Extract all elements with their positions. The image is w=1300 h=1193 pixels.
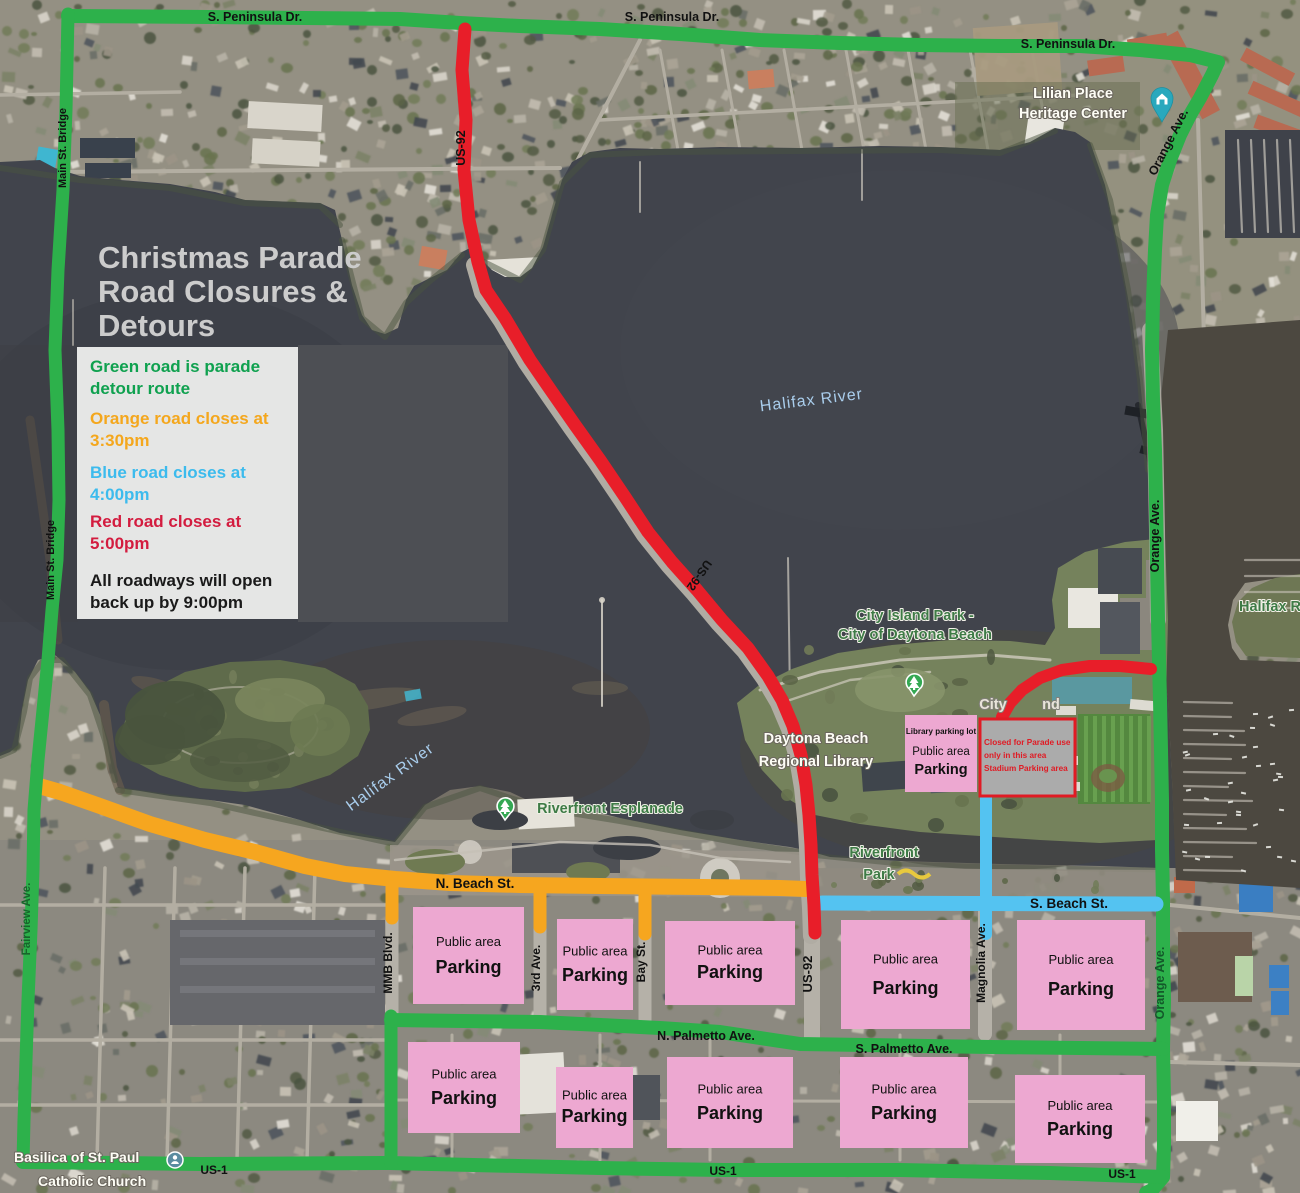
svg-text:Parking: Parking <box>872 978 938 998</box>
svg-text:Riverfront: Riverfront <box>849 845 918 861</box>
svg-text:Heritage Center: Heritage Center <box>1019 106 1127 122</box>
svg-text:US-92: US-92 <box>800 956 815 993</box>
svg-text:Public area: Public area <box>697 943 763 958</box>
svg-text:Public area: Public area <box>697 1081 763 1096</box>
svg-text:City Island Park -: City Island Park - <box>856 608 974 624</box>
svg-text:Main St. Bridge: Main St. Bridge <box>45 520 57 600</box>
svg-text:Public area: Public area <box>912 746 970 758</box>
svg-text:Public area: Public area <box>1048 952 1114 967</box>
svg-text:Detours: Detours <box>98 308 215 343</box>
svg-text:Road Closures &: Road Closures & <box>98 274 348 309</box>
svg-text:S. Beach St.: S. Beach St. <box>1030 896 1108 911</box>
svg-text:Parking: Parking <box>561 1106 627 1126</box>
svg-text:Public area: Public area <box>431 1066 497 1081</box>
svg-text:US-1: US-1 <box>709 1164 737 1178</box>
svg-text:Fairview Ave.: Fairview Ave. <box>21 883 33 956</box>
svg-text:3:30pm: 3:30pm <box>90 431 150 450</box>
svg-text:4:00pm: 4:00pm <box>90 485 150 504</box>
svg-text:City: City <box>979 697 1006 713</box>
svg-text:Park: Park <box>863 867 895 883</box>
svg-text:Parking: Parking <box>697 1103 763 1123</box>
svg-text:N. Palmetto Ave.: N. Palmetto Ave. <box>657 1029 755 1043</box>
svg-text:Public area: Public area <box>873 952 939 967</box>
svg-text:Public area: Public area <box>436 934 502 949</box>
svg-text:Closed for Parade use: Closed for Parade use <box>984 738 1071 747</box>
svg-text:Christmas Parade: Christmas Parade <box>98 240 362 275</box>
svg-text:Public area: Public area <box>562 943 628 958</box>
svg-text:S. Peninsula Dr.: S. Peninsula Dr. <box>1021 37 1115 51</box>
svg-text:Riverfront Esplanade: Riverfront Esplanade <box>537 801 683 817</box>
svg-text:S. Peninsula Dr.: S. Peninsula Dr. <box>625 10 719 24</box>
svg-text:back up by 9:00pm: back up by 9:00pm <box>90 593 243 612</box>
svg-text:Orange Ave.: Orange Ave. <box>1148 500 1162 573</box>
svg-text:S. Peninsula Dr.: S. Peninsula Dr. <box>208 10 302 24</box>
svg-text:Public area: Public area <box>1047 1098 1113 1113</box>
svg-text:Green road is parade: Green road is parade <box>90 357 260 376</box>
svg-text:Public area: Public area <box>562 1087 628 1102</box>
svg-text:N. Beach St.: N. Beach St. <box>436 876 515 891</box>
svg-text:Daytona Beach: Daytona Beach <box>764 731 869 747</box>
svg-text:US-92: US-92 <box>454 130 468 165</box>
svg-text:Main St. Bridge: Main St. Bridge <box>57 108 69 188</box>
svg-text:detour route: detour route <box>90 379 190 398</box>
svg-text:MMB Blvd.: MMB Blvd. <box>381 932 395 993</box>
svg-text:Halifax R: Halifax R <box>1239 599 1300 615</box>
svg-text:Red road closes at: Red road closes at <box>90 512 242 531</box>
svg-text:All roadways will open: All roadways will open <box>90 571 272 590</box>
svg-text:Catholic Church: Catholic Church <box>38 1173 146 1189</box>
svg-text:Parking: Parking <box>562 965 628 985</box>
svg-text:Orange road closes at: Orange road closes at <box>90 409 269 428</box>
svg-text:5:00pm: 5:00pm <box>90 534 150 553</box>
svg-text:Parking: Parking <box>431 1088 497 1108</box>
svg-text:US-1: US-1 <box>200 1163 228 1177</box>
svg-text:only in this area: only in this area <box>984 751 1047 760</box>
svg-text:City of Daytona Beach: City of Daytona Beach <box>838 627 992 643</box>
svg-text:S. Palmetto Ave.: S. Palmetto Ave. <box>855 1042 952 1056</box>
svg-text:Parking: Parking <box>914 762 967 778</box>
svg-text:Library parking lot: Library parking lot <box>906 727 977 736</box>
svg-text:Parking: Parking <box>1048 979 1114 999</box>
svg-text:Basilica of St. Paul: Basilica of St. Paul <box>14 1149 139 1165</box>
svg-text:Public area: Public area <box>871 1081 937 1096</box>
svg-text:Stadium Parking area: Stadium Parking area <box>984 764 1068 773</box>
svg-text:Lilian Place: Lilian Place <box>1033 86 1113 102</box>
svg-text:Parking: Parking <box>871 1103 937 1123</box>
svg-text:nd: nd <box>1042 697 1060 713</box>
svg-text:Magnolia Ave.: Magnolia Ave. <box>974 923 988 1003</box>
svg-text:Parking: Parking <box>697 962 763 982</box>
svg-text:Parking: Parking <box>435 957 501 977</box>
svg-text:Parking: Parking <box>1047 1119 1113 1139</box>
svg-text:US-1: US-1 <box>1108 1167 1136 1181</box>
svg-text:Regional Library: Regional Library <box>759 754 873 770</box>
svg-text:Orange Ave.: Orange Ave. <box>1153 947 1167 1020</box>
svg-text:Blue road closes at: Blue road closes at <box>90 463 246 482</box>
svg-text:3rd Ave.: 3rd Ave. <box>529 945 543 991</box>
svg-text:Bay St.: Bay St. <box>634 942 648 983</box>
